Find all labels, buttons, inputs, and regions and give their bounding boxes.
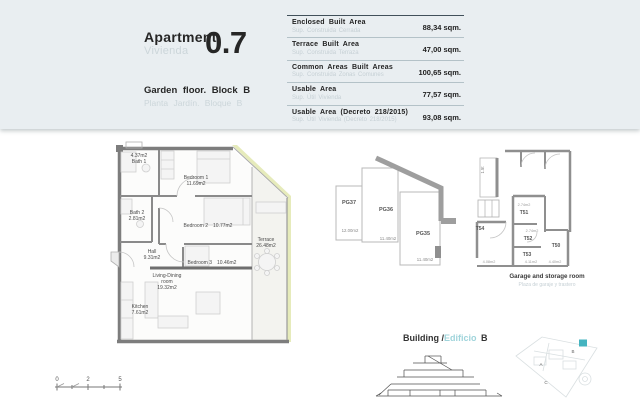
- site-label-a: A: [539, 362, 542, 367]
- lift-label: 1.5t: [480, 166, 485, 174]
- bedroom3-area: 10.46m2: [217, 260, 237, 266]
- hall-area: 9.31m2: [144, 255, 161, 261]
- scale-bar: 0 2 5: [55, 377, 122, 391]
- living-area: 19.32m2: [157, 285, 177, 291]
- garage-pillar: [435, 246, 441, 258]
- terrace-area: 26.48m2: [256, 243, 276, 249]
- t51-label: T51: [520, 210, 529, 216]
- scale-tick-5: 5: [118, 377, 122, 383]
- t54-label: T54: [476, 226, 485, 232]
- site-plan: A B C: [516, 337, 597, 397]
- bedroom1-area: 11.69m2: [186, 181, 205, 187]
- corner-column: [116, 145, 123, 152]
- t54-area: 4.08m2: [483, 260, 496, 264]
- storage-room-large: [480, 158, 497, 197]
- scale-line: [55, 384, 122, 391]
- storage-caption: Garage and storage room: [509, 273, 585, 280]
- building-section: Building / Edificio B: [376, 333, 502, 396]
- bedroom3-name: Bedroom 3: [188, 260, 213, 266]
- t53-area: 4.11m2: [525, 260, 537, 264]
- scale-tick-0: 0: [55, 377, 59, 383]
- pg-label: PG35: [416, 231, 430, 237]
- building-label-es: Edificio: [444, 333, 477, 343]
- plan-sheet: Apartment Vivienda 0.7 Garden floor. Blo…: [0, 0, 640, 409]
- pg-label: PG37: [342, 200, 356, 206]
- bedroom2-area: 10.77m2: [213, 223, 233, 229]
- building-label: Building /: [403, 333, 444, 343]
- facade-highlight-vertical: [288, 196, 292, 342]
- entrance-step: [111, 252, 119, 267]
- t53-label: T53: [523, 252, 532, 258]
- storage-caption-es: Plaza de garaje y trastero: [519, 282, 576, 288]
- scale-hatch: [57, 384, 79, 388]
- t50-label: T50: [552, 243, 561, 249]
- lockers: [478, 200, 499, 217]
- t52-area: 2.74m2: [526, 229, 539, 233]
- garage-wall-stub: [441, 218, 456, 224]
- site-label-b: B: [571, 349, 574, 354]
- pg-area: 11.40m2: [380, 236, 397, 241]
- building-block: B: [481, 333, 488, 343]
- pg-area: 12.00m2: [342, 228, 359, 233]
- bedroom2-name: Bedroom 2: [184, 223, 209, 229]
- garage-plan: PG37 12.00m2 PG36 11.40m2 PG35 11.40m2: [336, 158, 456, 265]
- block-b-marker: [579, 340, 587, 347]
- bath2-area: 2.81m2: [129, 216, 146, 222]
- bath1-name: Bath 1: [132, 159, 147, 165]
- drawings-layer: 4.37m2 Bath 1 Bedroom 1 11.69m2 Bath 2 2…: [0, 0, 640, 409]
- t50-area: 4.40m2: [549, 260, 562, 264]
- pg-area: 11.40m2: [417, 257, 434, 262]
- t51-area: 2.74m2: [518, 203, 531, 207]
- building-elevation-sketch: [376, 356, 502, 396]
- apartment-floor-plan: 4.37m2 Bath 1 Bedroom 1 11.69m2 Bath 2 2…: [111, 142, 291, 342]
- storage-plan: 1.5t 2.74m2 T51 2.74m2 T52 T53 4.11m2 T5…: [476, 151, 585, 288]
- t52-label: T52: [524, 236, 533, 242]
- scale-tick-2: 2: [86, 377, 90, 383]
- pg-label: PG36: [379, 207, 393, 213]
- kitchen-area: 7.61m2: [132, 310, 149, 316]
